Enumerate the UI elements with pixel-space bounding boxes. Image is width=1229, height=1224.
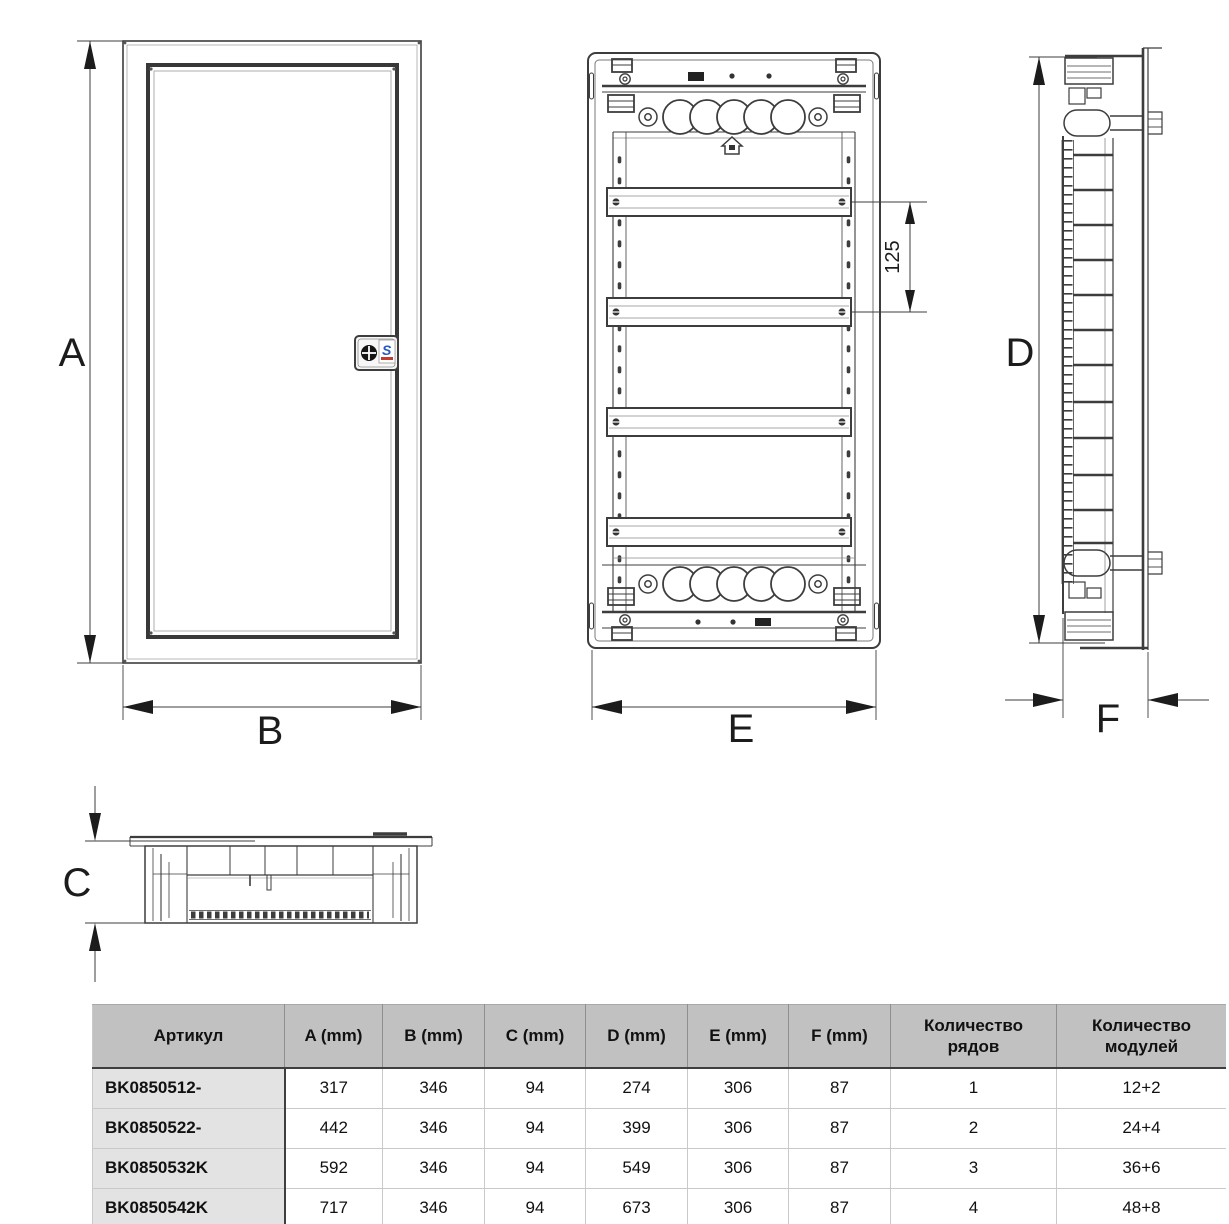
cell-f: 87: [789, 1068, 891, 1108]
table-header-row: Артикул A (mm) B (mm) C (mm) D (mm) E (m…: [93, 1005, 1227, 1069]
side-body: [1062, 136, 1113, 614]
arrow-up-icon: [905, 202, 915, 224]
arrow-left-icon: [1148, 693, 1178, 707]
cell-c: 94: [485, 1068, 586, 1108]
arrow-right-icon: [1033, 693, 1063, 707]
din-rail: [607, 188, 851, 216]
din-rail: [607, 518, 851, 546]
header-a: A (mm): [285, 1005, 383, 1069]
arrow-down-icon: [89, 813, 101, 841]
header-c: C (mm): [485, 1005, 586, 1069]
header-article: Артикул: [93, 1005, 285, 1069]
front-door-view: S A B: [55, 28, 475, 760]
cell-rows-count: 4: [891, 1188, 1057, 1224]
cell-c: 94: [485, 1188, 586, 1224]
side-top-cap: [1064, 58, 1162, 136]
table-row: BK0850532K 592 346 94 549 306 87 3 36+6: [93, 1148, 1227, 1188]
arrow-left-icon: [592, 700, 622, 714]
enclosure-body: [588, 53, 880, 648]
depth-drawing: [130, 834, 432, 923]
spec-table: Артикул A (mm) B (mm) C (mm) D (mm) E (m…: [92, 1004, 1226, 1224]
cell-d: 549: [586, 1148, 688, 1188]
dim-e-label: E: [728, 707, 755, 751]
cell-a: 442: [285, 1108, 383, 1148]
din-rail: [607, 408, 851, 436]
cell-rows-count: 2: [891, 1108, 1057, 1148]
left-bracket: [153, 848, 187, 921]
cell-b: 346: [383, 1068, 485, 1108]
datasheet-page: { "diagram": { "dim_labels": { "a": "A",…: [0, 0, 1229, 1224]
cell-modules-count: 12+2: [1057, 1068, 1227, 1108]
rail-spacing-label: 125: [882, 240, 904, 273]
cell-e: 306: [688, 1068, 789, 1108]
arrow-down-icon: [1033, 615, 1045, 643]
cell-c: 94: [485, 1148, 586, 1188]
cell-a: 592: [285, 1148, 383, 1188]
side-rungs: [1073, 155, 1113, 543]
din-rail: [607, 298, 851, 326]
cell-f: 87: [789, 1108, 891, 1148]
dim-f-label: F: [1096, 697, 1120, 741]
cell-e: 306: [688, 1148, 789, 1188]
cell-article: BK0850542K: [93, 1188, 285, 1224]
table-row: BK0850512- 317 346 94 274 306 87 1 12+2: [93, 1068, 1227, 1108]
top-connector: [688, 72, 704, 81]
cell-f: 87: [789, 1148, 891, 1188]
depth-view: C: [55, 778, 485, 998]
header-modules-count: Количество модулей: [1057, 1005, 1227, 1069]
header-e: E (mm): [688, 1005, 789, 1069]
dim-d-label: D: [1006, 331, 1035, 375]
arrow-left-icon: [123, 700, 153, 714]
cell-e: 306: [688, 1188, 789, 1224]
cell-d: 399: [586, 1108, 688, 1148]
header-b: B (mm): [383, 1005, 485, 1069]
arrow-up-icon: [84, 41, 96, 69]
toothed-strip: [189, 911, 371, 920]
lock-brand-letter: S: [382, 342, 392, 358]
header-rows-count: Количество рядов: [891, 1005, 1057, 1069]
header-f: F (mm): [789, 1005, 891, 1069]
dim-c-label: C: [63, 861, 92, 905]
cell-article: BK0850522-: [93, 1108, 285, 1148]
arrow-up-icon: [1033, 57, 1045, 85]
cell-a: 717: [285, 1188, 383, 1224]
door-drawing: S: [123, 41, 421, 663]
cell-modules-count: 48+8: [1057, 1188, 1227, 1224]
spec-table-container: Артикул A (mm) B (mm) C (mm) D (mm) E (m…: [92, 1004, 1226, 1224]
dimension-c: [85, 786, 255, 982]
side-profile: [1062, 48, 1162, 650]
cell-d: 274: [586, 1068, 688, 1108]
right-bracket: [373, 848, 409, 921]
cell-a: 317: [285, 1068, 383, 1108]
cell-f: 87: [789, 1188, 891, 1224]
table-row: BK0850522- 442 346 94 399 306 87 2 24+4: [93, 1108, 1227, 1148]
table-row: BK0850542K 717 346 94 673 306 87 4 48+8: [93, 1188, 1227, 1224]
bottom-connector: [755, 618, 771, 626]
cell-article: BK0850512-: [93, 1068, 285, 1108]
arrow-down-icon: [84, 635, 96, 663]
arrow-up-icon: [89, 923, 101, 951]
arrow-down-icon: [905, 290, 915, 312]
cell-modules-count: 36+6: [1057, 1148, 1227, 1188]
cell-article: BK0850532K: [93, 1148, 285, 1188]
cell-c: 94: [485, 1108, 586, 1148]
door-lock: S: [355, 336, 398, 370]
cell-rows-count: 3: [891, 1148, 1057, 1188]
dim-a-label: A: [59, 331, 86, 375]
dim-b-label: B: [257, 709, 284, 753]
tray-dividers: [230, 846, 333, 875]
open-enclosure-view: E 125: [555, 28, 985, 760]
cell-b: 346: [383, 1148, 485, 1188]
header-d: D (mm): [586, 1005, 688, 1069]
cell-d: 673: [586, 1188, 688, 1224]
arrow-right-icon: [846, 700, 876, 714]
arrow-right-icon: [391, 700, 421, 714]
side-view: D F: [985, 28, 1229, 760]
cell-b: 346: [383, 1108, 485, 1148]
cell-b: 346: [383, 1188, 485, 1224]
cell-rows-count: 1: [891, 1068, 1057, 1108]
cell-modules-count: 24+4: [1057, 1108, 1227, 1148]
cell-e: 306: [688, 1108, 789, 1148]
